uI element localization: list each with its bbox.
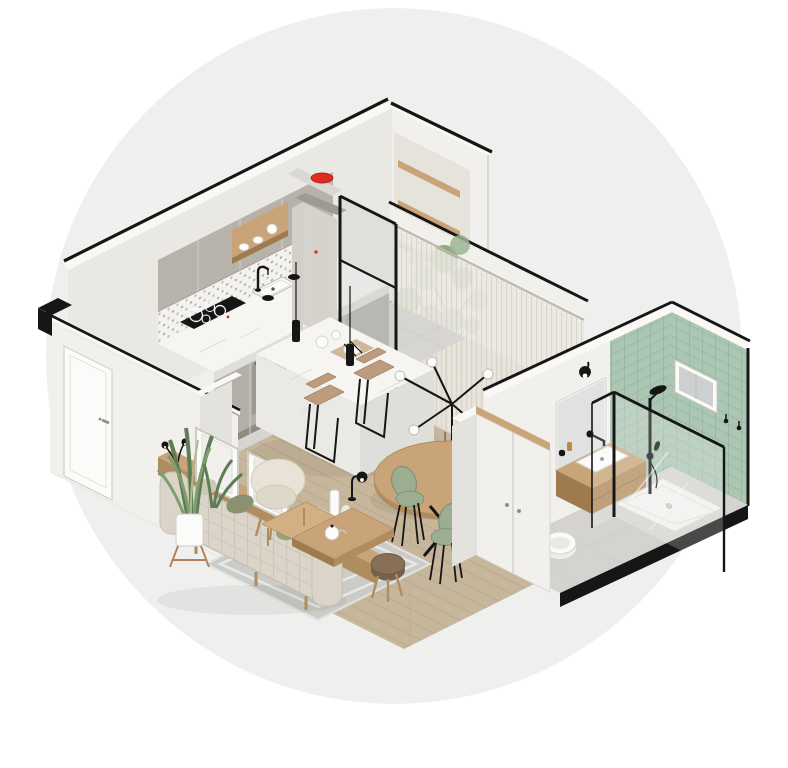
bowl <box>239 244 249 251</box>
soap-bottle <box>567 442 572 451</box>
cup <box>559 450 565 456</box>
door-knob <box>505 503 509 507</box>
bowl <box>316 336 328 348</box>
indicator-dot <box>314 250 318 254</box>
bowl <box>253 237 263 244</box>
door-knob <box>517 509 521 513</box>
isometric-scene <box>0 0 788 768</box>
teapot <box>267 224 277 234</box>
bowl <box>332 331 341 340</box>
entry-door <box>64 346 112 500</box>
apartment-illustration <box>0 0 788 768</box>
vase-bottle <box>330 490 339 518</box>
plant-pot <box>176 514 203 546</box>
red-bowl <box>311 173 333 183</box>
